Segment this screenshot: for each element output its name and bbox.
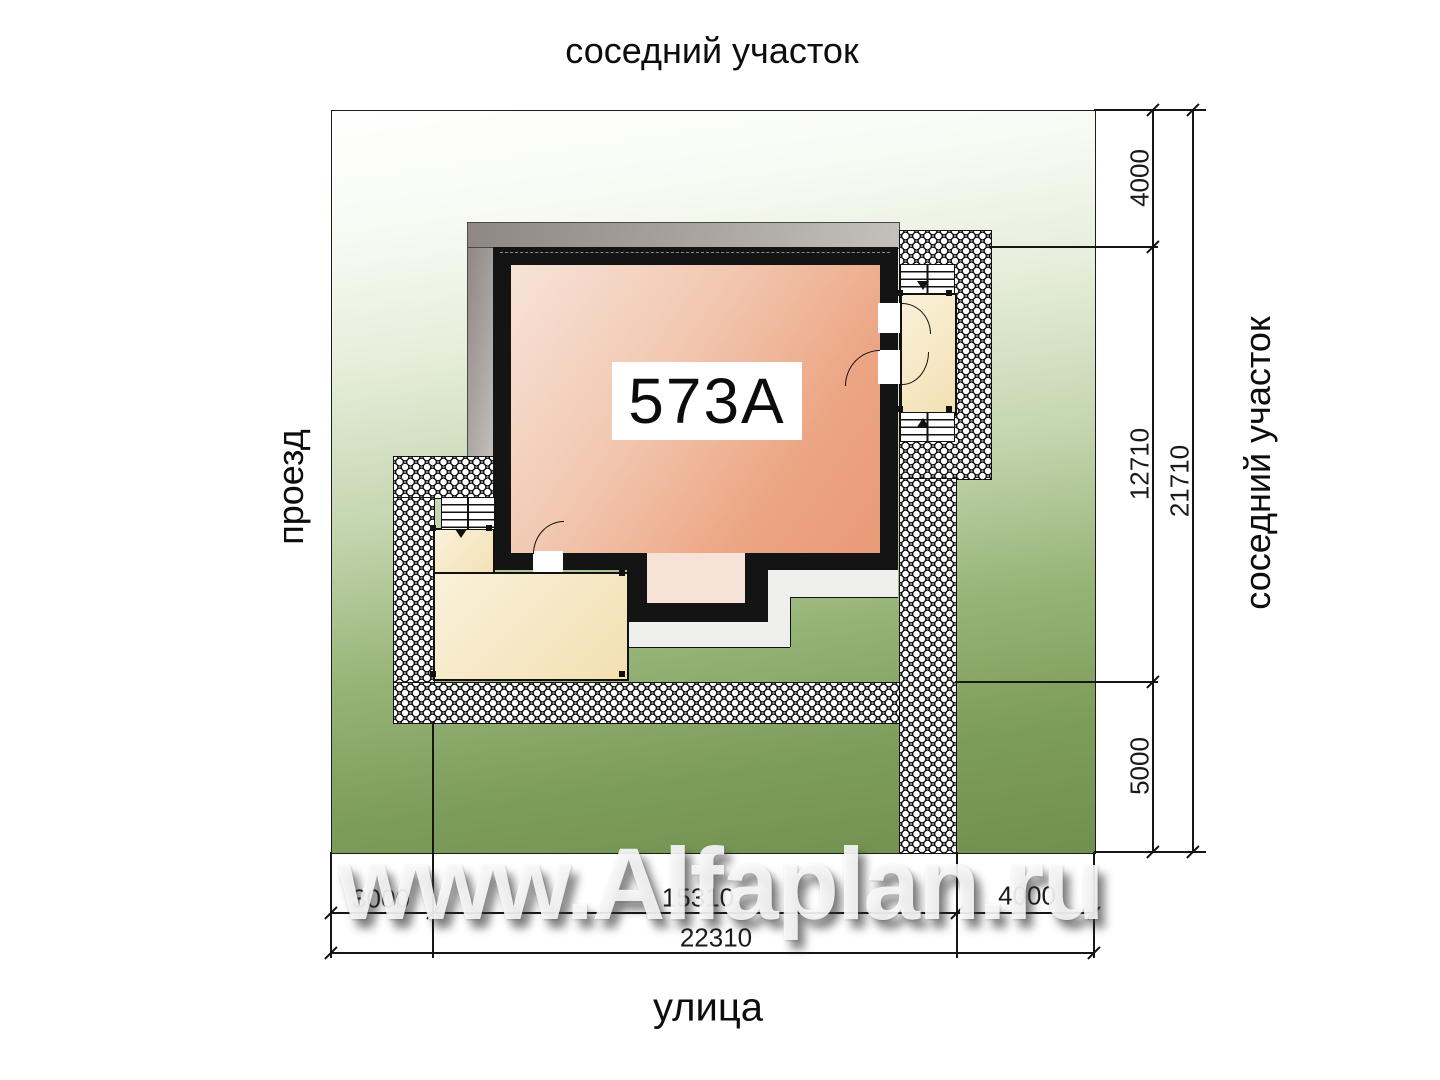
porch-corner-dot <box>897 290 903 296</box>
paving-left-top <box>393 456 495 499</box>
dim-label-21710: 21710 <box>1165 445 1196 517</box>
porch-stairs-bottom-arrow <box>917 418 929 427</box>
dim-label-4000-right: 4000 <box>1125 149 1156 207</box>
terrace-corner-dot <box>619 570 625 576</box>
paving-bottom-band <box>393 682 957 724</box>
house-number-plate: 573А <box>612 362 802 440</box>
dim-label-12710: 12710 <box>1125 428 1156 500</box>
terrace-corner-dot <box>486 525 492 531</box>
terrace-corner-dot <box>430 525 436 531</box>
porch-corner-dot <box>897 406 903 412</box>
dim-label-5000: 5000 <box>1125 737 1156 795</box>
label-neighbor-plot-right: соседний участок <box>1237 316 1279 609</box>
paving-left-strip <box>393 497 435 684</box>
porch-stairs-bottom <box>900 412 955 442</box>
house-bay-interior <box>647 553 745 603</box>
label-driveway-left: проезд <box>270 429 312 545</box>
porch-corner-dot <box>946 290 952 296</box>
house-number-text: 573А <box>628 364 785 438</box>
door-opening-porch-top <box>878 303 900 333</box>
plinth-step <box>768 570 791 647</box>
plinth-right <box>790 570 898 598</box>
roof-edge-dashed-line <box>500 252 890 253</box>
extension-line <box>990 246 1158 248</box>
terrace-main <box>433 572 629 681</box>
label-neighbor-plot-top: соседний участок <box>565 30 858 72</box>
terrace-stairs-arrow <box>455 529 467 538</box>
door-opening-terrace <box>533 551 563 572</box>
roof-overhang-top <box>467 222 900 249</box>
terrace-corner-dot <box>430 671 436 677</box>
porch-corner-dot <box>946 406 952 412</box>
terrace-corner-dot <box>619 671 625 677</box>
porch-stairs-top-arrow <box>917 281 929 290</box>
extension-line <box>955 681 1158 683</box>
watermark: www.Alfaplan.ru <box>0 826 1440 943</box>
door-opening-porch-bottom <box>878 350 900 384</box>
site-plan-canvas: 573А 4000 12 <box>0 0 1440 1080</box>
paving-right-strip <box>899 478 957 854</box>
roof-overhang-left <box>467 247 495 458</box>
plinth-under-bump <box>625 622 790 648</box>
label-street-bottom: улица <box>653 986 763 1031</box>
